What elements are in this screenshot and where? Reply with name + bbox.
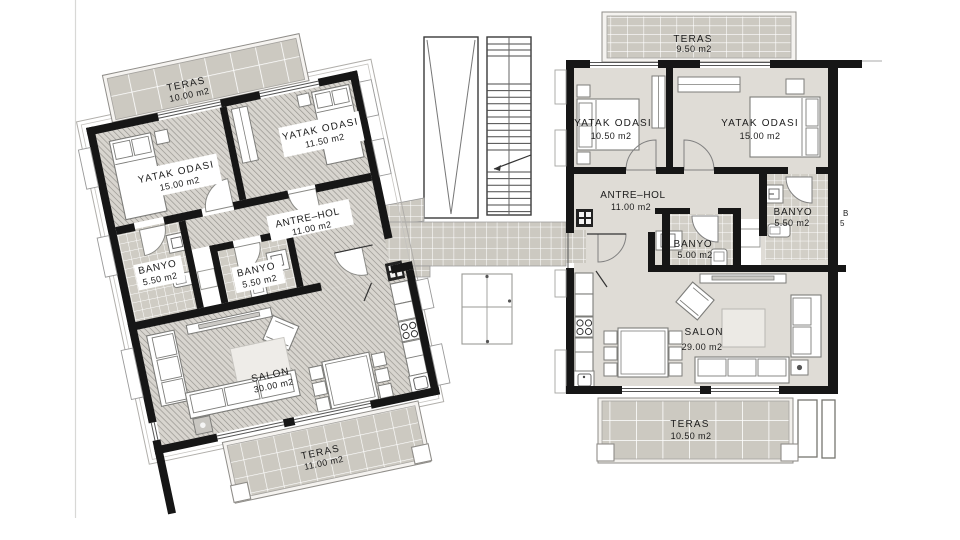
svg-text:15.00 m2: 15.00 m2 [740, 131, 781, 141]
svg-text:YATAK ODASI: YATAK ODASI [721, 118, 799, 129]
svg-text:11.00 m2: 11.00 m2 [611, 202, 651, 212]
svg-text:10.50 m2: 10.50 m2 [671, 431, 712, 441]
svg-text:5.00 m2: 5.00 m2 [677, 250, 712, 260]
svg-text:ANTRE–HOL: ANTRE–HOL [600, 190, 665, 201]
svg-text:5.50 m2: 5.50 m2 [774, 218, 809, 228]
svg-text:10.50 m2: 10.50 m2 [591, 131, 632, 141]
svg-text:BANYO: BANYO [773, 207, 812, 218]
svg-text:29.00 m2: 29.00 m2 [682, 342, 723, 352]
svg-text:TERAS: TERAS [670, 419, 709, 430]
svg-text:SALON: SALON [685, 327, 724, 338]
svg-text:5: 5 [840, 219, 845, 228]
svg-text:B: B [843, 209, 848, 218]
svg-text:YATAK ODASI: YATAK ODASI [574, 118, 652, 129]
svg-text:BANYO: BANYO [673, 239, 712, 250]
svg-text:9.50 m2: 9.50 m2 [676, 44, 711, 54]
